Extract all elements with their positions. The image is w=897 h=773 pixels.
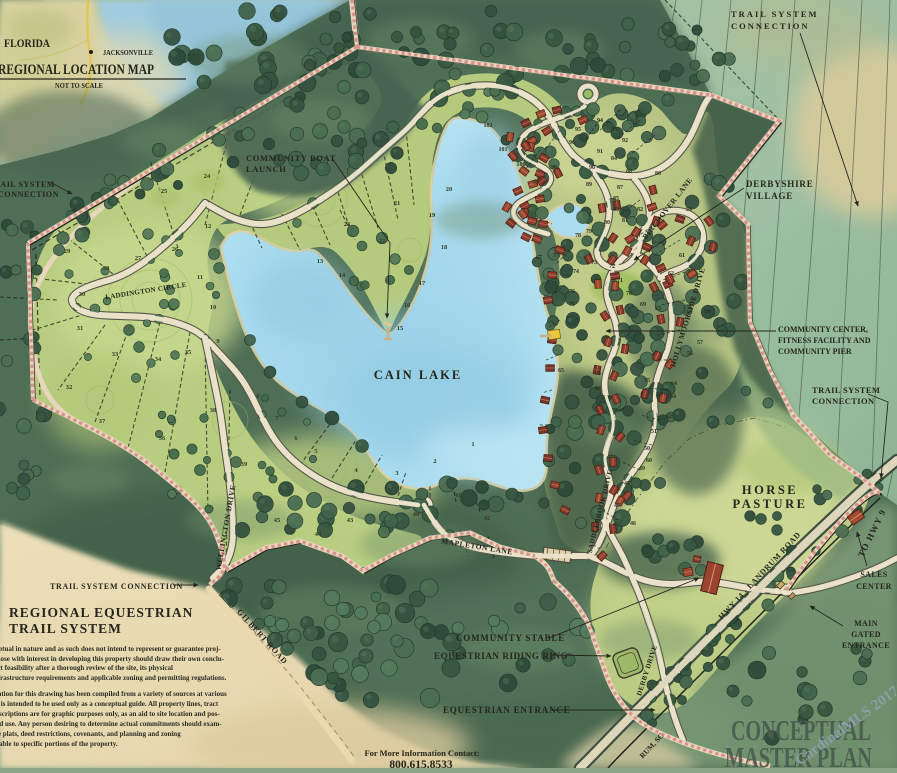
svg-text:VILLAGE: VILLAGE bbox=[746, 191, 793, 201]
svg-text:101: 101 bbox=[499, 147, 508, 153]
svg-text:ject feasibility after a thoro: ject feasibility after a thorough review… bbox=[0, 664, 173, 672]
svg-text:93: 93 bbox=[611, 127, 617, 133]
svg-text:14: 14 bbox=[339, 272, 346, 279]
svg-text:50: 50 bbox=[644, 446, 650, 452]
svg-text:26: 26 bbox=[172, 246, 179, 253]
svg-text:85: 85 bbox=[613, 196, 619, 202]
svg-text:29: 29 bbox=[64, 248, 71, 255]
svg-text:37: 37 bbox=[99, 418, 106, 425]
svg-text:39: 39 bbox=[241, 461, 248, 468]
svg-text:18: 18 bbox=[441, 244, 448, 251]
svg-text:REGIONAL EQUESTRIAN: REGIONAL EQUESTRIAN bbox=[9, 605, 193, 620]
svg-text:81: 81 bbox=[622, 218, 628, 224]
svg-text:47: 47 bbox=[614, 503, 620, 509]
svg-text:55: 55 bbox=[644, 378, 650, 384]
svg-text:REGIONAL LOCATION MAP: REGIONAL LOCATION MAP bbox=[0, 62, 154, 78]
svg-text:800.615.8533: 800.615.8533 bbox=[389, 759, 453, 768]
svg-text:45: 45 bbox=[274, 517, 281, 524]
svg-text:56: 56 bbox=[687, 351, 693, 357]
svg-text:86: 86 bbox=[655, 171, 661, 177]
svg-text:75: 75 bbox=[569, 302, 575, 308]
svg-text:27: 27 bbox=[135, 255, 142, 262]
svg-text:74: 74 bbox=[573, 269, 579, 275]
svg-text:71: 71 bbox=[617, 278, 623, 284]
svg-text:25: 25 bbox=[161, 188, 168, 195]
svg-text:COMMUNITY BOAT: COMMUNITY BOAT bbox=[246, 153, 336, 163]
svg-text:33: 33 bbox=[112, 351, 119, 358]
svg-text:DERBYSHIRE: DERBYSHIRE bbox=[746, 179, 814, 189]
svg-text:20: 20 bbox=[446, 186, 453, 193]
svg-text:99: 99 bbox=[533, 180, 539, 186]
svg-text:102: 102 bbox=[484, 123, 493, 129]
svg-text:49: 49 bbox=[639, 466, 645, 472]
svg-text:44: 44 bbox=[315, 531, 322, 538]
svg-text:21: 21 bbox=[394, 200, 401, 207]
svg-text:1: 1 bbox=[471, 441, 474, 448]
svg-text:and use. Any person desiring t: and use. Any person desiring to determin… bbox=[0, 720, 222, 728]
svg-text:77: 77 bbox=[553, 253, 559, 259]
svg-text:22: 22 bbox=[379, 238, 386, 245]
svg-text:34: 34 bbox=[155, 356, 162, 363]
svg-text:FITNESS FACILITY AND: FITNESS FACILITY AND bbox=[778, 336, 871, 345]
svg-text:32: 32 bbox=[66, 384, 73, 391]
svg-text:10: 10 bbox=[210, 304, 217, 311]
svg-text:98: 98 bbox=[551, 165, 557, 171]
svg-text:CONNECTION: CONNECTION bbox=[731, 21, 810, 31]
svg-text:11: 11 bbox=[197, 274, 203, 281]
svg-text:19: 19 bbox=[429, 212, 436, 219]
svg-text:100: 100 bbox=[517, 162, 526, 168]
svg-text:90: 90 bbox=[589, 165, 595, 171]
svg-text:CENTER: CENTER bbox=[856, 582, 892, 591]
svg-text:51: 51 bbox=[651, 429, 657, 435]
svg-text:GATED: GATED bbox=[851, 630, 881, 639]
svg-text:HORSE: HORSE bbox=[742, 483, 798, 497]
svg-text:PASTURE: PASTURE bbox=[733, 497, 808, 511]
svg-text:89: 89 bbox=[586, 182, 592, 188]
svg-text:23: 23 bbox=[344, 221, 351, 228]
svg-text:ENTRANCE: ENTRANCE bbox=[842, 641, 890, 650]
svg-text:46: 46 bbox=[630, 521, 636, 527]
svg-text:30: 30 bbox=[79, 291, 86, 298]
svg-text:13: 13 bbox=[317, 258, 324, 265]
svg-text:67: 67 bbox=[536, 255, 542, 261]
svg-text:66: 66 bbox=[595, 386, 601, 392]
svg-text:COMMUNITY CENTER,: COMMUNITY CENTER, bbox=[778, 325, 868, 334]
svg-text:TRAIL SYSTEM: TRAIL SYSTEM bbox=[9, 621, 122, 636]
svg-text:COMMUNITY PIER: COMMUNITY PIER bbox=[778, 347, 852, 356]
svg-text:descriptions are for graphic p: descriptions are for graphic purposes on… bbox=[0, 710, 220, 718]
svg-text:82: 82 bbox=[637, 207, 643, 213]
svg-text:78: 78 bbox=[575, 233, 581, 239]
svg-text:28: 28 bbox=[103, 265, 110, 272]
svg-text:79: 79 bbox=[586, 229, 592, 235]
svg-text:15: 15 bbox=[397, 325, 404, 332]
svg-text:31: 31 bbox=[77, 325, 84, 332]
svg-text:94: 94 bbox=[597, 118, 603, 124]
svg-text:62: 62 bbox=[668, 271, 674, 277]
svg-text:ate plats, deed restrictions,: ate plats, deed restrictions, covenants,… bbox=[0, 730, 181, 738]
svg-text:SALES: SALES bbox=[860, 570, 887, 579]
svg-text:infrastructure requirements an: infrastructure requirements and applicab… bbox=[0, 674, 227, 682]
svg-text:TRAIL SYSTEM: TRAIL SYSTEM bbox=[812, 385, 880, 395]
svg-text:65: 65 bbox=[558, 368, 564, 374]
svg-text:60: 60 bbox=[646, 458, 652, 464]
svg-text:53: 53 bbox=[656, 392, 662, 398]
svg-text:licable to specific portions o: licable to specific portions of the prop… bbox=[0, 740, 118, 748]
svg-text:76: 76 bbox=[569, 289, 575, 295]
svg-text:MAIN: MAIN bbox=[854, 619, 878, 628]
svg-text:LAUNCH: LAUNCH bbox=[246, 164, 286, 174]
svg-text:63: 63 bbox=[655, 306, 661, 312]
svg-text:16: 16 bbox=[404, 302, 411, 309]
svg-text:69: 69 bbox=[640, 302, 646, 308]
svg-text:TRAIL SYSTEM CONNECTION: TRAIL SYSTEM CONNECTION bbox=[50, 582, 183, 591]
svg-text:42: 42 bbox=[484, 515, 491, 522]
svg-text:CONNECTION: CONNECTION bbox=[812, 396, 875, 406]
svg-text:59: 59 bbox=[686, 207, 692, 213]
svg-text:40: 40 bbox=[413, 511, 420, 518]
svg-text:68: 68 bbox=[595, 371, 601, 377]
svg-text:For More Information Contact:: For More Information Contact: bbox=[364, 748, 479, 758]
svg-text:52: 52 bbox=[666, 414, 672, 420]
svg-text:24: 24 bbox=[204, 173, 211, 180]
svg-text:TRAIL SYSTEM: TRAIL SYSTEM bbox=[731, 9, 819, 19]
svg-text:EQUESTRIAN RIDING RING: EQUESTRIAN RIDING RING bbox=[434, 651, 568, 661]
svg-text:96: 96 bbox=[569, 140, 575, 146]
svg-text:92: 92 bbox=[622, 138, 628, 144]
svg-text:70: 70 bbox=[626, 291, 632, 297]
svg-text:ceptual in nature and as such: ceptual in nature and as such does not i… bbox=[0, 645, 221, 653]
svg-text:73: 73 bbox=[591, 260, 597, 266]
svg-text:EQUESTRIAN ENTRANCE: EQUESTRIAN ENTRANCE bbox=[443, 705, 570, 715]
svg-text:88: 88 bbox=[626, 169, 632, 175]
svg-text:JACKSONVILLE: JACKSONVILLE bbox=[103, 49, 153, 57]
svg-text:38: 38 bbox=[210, 407, 217, 414]
svg-text:mation for this drawing has be: mation for this drawing has been compile… bbox=[0, 690, 227, 698]
svg-text:35: 35 bbox=[185, 349, 192, 356]
svg-text:12: 12 bbox=[205, 223, 212, 230]
svg-text:84: 84 bbox=[611, 156, 617, 162]
svg-text:87: 87 bbox=[617, 185, 623, 191]
svg-text:Those with interest in develop: Those with interest in developing this p… bbox=[0, 655, 225, 663]
svg-text:64: 64 bbox=[671, 381, 677, 387]
svg-text:2: 2 bbox=[433, 458, 436, 465]
svg-text:83: 83 bbox=[613, 207, 619, 213]
svg-text:36: 36 bbox=[159, 435, 166, 442]
svg-text:41: 41 bbox=[455, 492, 462, 499]
svg-text:58: 58 bbox=[704, 309, 710, 315]
svg-text:FLORIDA: FLORIDA bbox=[4, 36, 50, 50]
svg-text:61: 61 bbox=[679, 253, 685, 259]
svg-text:NOT TO SCALE: NOT TO SCALE bbox=[55, 81, 103, 90]
svg-text:91: 91 bbox=[597, 149, 603, 155]
svg-text:95: 95 bbox=[575, 127, 581, 133]
svg-text:80: 80 bbox=[604, 220, 610, 226]
svg-text:48: 48 bbox=[624, 481, 630, 487]
svg-text:54: 54 bbox=[670, 394, 676, 400]
svg-text:ch is intended to be used only: ch is intended to be used only as a conc… bbox=[0, 700, 219, 708]
svg-text:CAIN LAKE: CAIN LAKE bbox=[374, 368, 463, 382]
svg-text:43: 43 bbox=[347, 517, 354, 524]
svg-text:CONNECTION: CONNECTION bbox=[0, 190, 59, 199]
svg-text:TRAIL SYSTEM: TRAIL SYSTEM bbox=[0, 180, 55, 189]
svg-text:72: 72 bbox=[609, 264, 615, 270]
svg-text:COMMUNITY STABLE: COMMUNITY STABLE bbox=[456, 633, 565, 643]
svg-text:17: 17 bbox=[419, 280, 426, 287]
svg-text:57: 57 bbox=[697, 340, 703, 346]
